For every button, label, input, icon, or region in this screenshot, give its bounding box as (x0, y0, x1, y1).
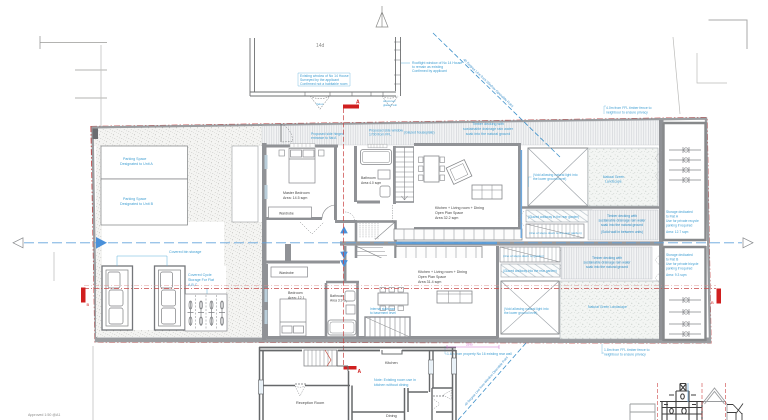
svg-text:1.8m from FFL timber fence to: 1.8m from FFL timber fence to (604, 348, 650, 352)
svg-text:kitchen without dining: kitchen without dining (374, 383, 408, 387)
svg-text:Storage For Flat: Storage For Flat (188, 278, 214, 282)
svg-text:soak into the natural ground: soak into the natural ground (466, 132, 511, 136)
svg-text:glazed win: glazed win (383, 103, 398, 107)
svg-text:Bathroom: Bathroom (361, 176, 376, 180)
svg-text:Wardrobe: Wardrobe (279, 212, 294, 216)
svg-text:to basement level: to basement level (370, 311, 396, 315)
svg-text:Confirmed by applicant: Confirmed by applicant (412, 69, 447, 73)
svg-text:A,B,C: A,B,C (188, 283, 198, 287)
svg-text:Kitchen + Living room + Dining: Kitchen + Living room + Dining (418, 270, 467, 274)
svg-text:Area 31.4 sqm: Area 31.4 sqm (418, 280, 441, 284)
svg-text:Parking Space: Parking Space (123, 157, 146, 161)
svg-text:the lower ground level): the lower ground level) (533, 177, 566, 181)
svg-text:Dining: Dining (386, 414, 397, 418)
svg-text:Bedroom: Bedroom (288, 291, 303, 295)
svg-text:sustainable drainage rain wate: sustainable drainage rain water (598, 219, 646, 223)
svg-text:B: B (711, 300, 714, 305)
svg-text:(Glazed walkway in the rear ga: (Glazed walkway in the rear garden) (528, 215, 579, 219)
svg-text:Open Plan Space: Open Plan Space (435, 211, 463, 215)
svg-text:Designated to Unit A: Designated to Unit A (120, 162, 153, 166)
svg-text:Storage dedicated: Storage dedicated (666, 253, 693, 257)
svg-text:soak into the natural ground: soak into the natural ground (586, 265, 628, 269)
svg-text:Area: 14.5 sqm: Area: 14.5 sqm (283, 196, 307, 200)
svg-text:sustainable drainage rain wate: sustainable drainage rain water (583, 261, 631, 265)
svg-text:Area: 12.7 sqm: Area: 12.7 sqm (666, 230, 689, 234)
svg-text:4.0m from FFL timber fence to: 4.0m from FFL timber fence to (606, 106, 652, 110)
svg-text:Bathroom: Bathroom (330, 294, 345, 298)
svg-text:2590: 2590 (466, 343, 473, 347)
svg-text:neighbour to ensure privacy: neighbour to ensure privacy (606, 111, 648, 115)
svg-text:Timber decking with: Timber decking with (472, 122, 504, 126)
svg-text:parking if required: parking if required (666, 224, 693, 228)
svg-text:A: A (356, 100, 360, 106)
svg-text:Open Plan Space: Open Plan Space (418, 275, 446, 279)
svg-text:Timber decking with: Timber decking with (607, 214, 637, 218)
svg-text:Covered Cycle: Covered Cycle (188, 273, 212, 277)
svg-text:Area 32.2 sqm: Area 32.2 sqm (435, 216, 458, 220)
svg-text:neighbour to ensure privacy: neighbour to ensure privacy (604, 353, 646, 357)
svg-text:Landscape: Landscape (605, 180, 622, 184)
svg-text:to Flat B: to Flat B (666, 258, 679, 262)
svg-text:(Solid wall in between units): (Solid wall in between units) (601, 230, 643, 234)
svg-text:1700 from FFL: 1700 from FFL (369, 133, 391, 137)
svg-text:Kitchen + Living room + Dining: Kitchen + Living room + Dining (435, 206, 484, 210)
svg-text:Area: 9.3 sqm: Area: 9.3 sqm (666, 273, 687, 277)
svg-text:Natural Green: Natural Green (603, 175, 624, 179)
svg-text:A: A (358, 369, 362, 375)
svg-text:Approved 1:50 @A1: Approved 1:50 @A1 (28, 413, 60, 417)
svg-text:Kitchen: Kitchen (385, 361, 398, 365)
svg-text:(4no of steps down to garden): (4no of steps down to garden) (503, 254, 544, 258)
svg-text:Use for private recycle: Use for private recycle (666, 219, 699, 223)
svg-text:B: B (87, 302, 90, 307)
svg-text:Velux: Velux (316, 102, 324, 106)
svg-text:Reception Room: Reception Room (296, 401, 324, 405)
svg-text:entrance to flat A: entrance to flat A (311, 136, 337, 140)
svg-text:Wardrobe: Wardrobe (279, 271, 294, 275)
svg-text:Confirmed not a habitable room: Confirmed not a habitable room (300, 82, 348, 86)
svg-text:1.6m from property No 16 exist: 1.6m from property No 16 existing rear w… (447, 352, 512, 356)
svg-text:(4no of steps down to the rear: (4no of steps down to the rear garden) (529, 231, 582, 235)
svg-text:Parking Space: Parking Space (123, 197, 146, 201)
svg-text:Natural Green Landscape: Natural Green Landscape (588, 305, 627, 309)
svg-text:Area:4.0 sqm: Area:4.0 sqm (361, 181, 381, 185)
svg-text:sustainable drainage rain wate: sustainable drainage rain water (463, 127, 514, 131)
svg-text:Designated to Unit B: Designated to Unit B (120, 202, 154, 206)
svg-text:parking if required: parking if required (666, 267, 693, 271)
svg-text:Use for private bicycle: Use for private bicycle (666, 262, 699, 266)
svg-text:the lower ground level): the lower ground level) (504, 311, 537, 315)
svg-text:soak into the natural ground: soak into the natural ground (601, 223, 643, 227)
svg-text:Covered bin storage: Covered bin storage (169, 250, 201, 254)
svg-text:14d: 14d (316, 43, 325, 49)
svg-text:(Glazed houseplate): (Glazed houseplate) (404, 131, 435, 135)
svg-text:(Glazed walkway into the rear: (Glazed walkway into the rear garden) (503, 269, 557, 273)
svg-text:Timber decking with: Timber decking with (592, 256, 622, 260)
svg-text:Master Bedroom: Master Bedroom (283, 191, 310, 195)
svg-text:to Flat A: to Flat A (666, 215, 679, 219)
svg-text:Note: Existing room use in: Note: Existing room use in (374, 378, 416, 382)
svg-text:Storage dedicated: Storage dedicated (666, 210, 693, 214)
